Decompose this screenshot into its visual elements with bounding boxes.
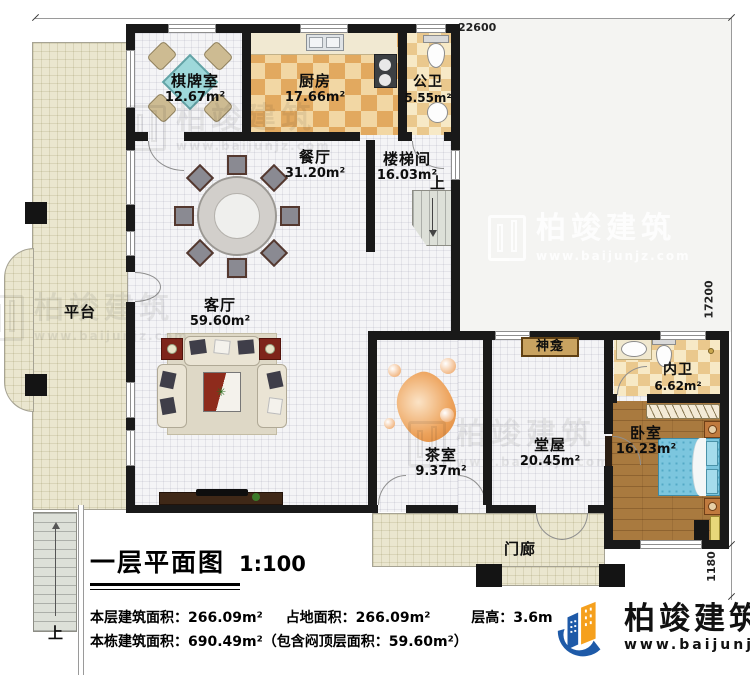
sofa-pillow bbox=[266, 371, 283, 390]
plan-title-row: 一层平面图 1:100 bbox=[90, 543, 553, 579]
wall bbox=[444, 132, 460, 141]
bed-pillow bbox=[706, 469, 718, 494]
room-label-gongwei: 公卫 5.55m² bbox=[399, 74, 457, 105]
wardrobe bbox=[646, 404, 720, 419]
dining-table-inner bbox=[214, 193, 260, 239]
inner-wc-sink bbox=[621, 341, 647, 357]
platform-floor bbox=[32, 42, 128, 510]
window bbox=[168, 24, 216, 33]
wall bbox=[126, 302, 135, 382]
tea-art-dot bbox=[440, 358, 456, 374]
wall bbox=[216, 24, 300, 33]
window bbox=[126, 382, 135, 418]
tea-art-dot bbox=[440, 408, 454, 422]
room-label-keting: 客厅 59.60m² bbox=[175, 296, 265, 330]
dim-porch-value: 1180 bbox=[705, 551, 718, 582]
kitchen-stove-burner bbox=[379, 59, 391, 71]
brand-website: www.baijunjz.com bbox=[624, 637, 750, 653]
public-wc-toilet-tank bbox=[423, 35, 449, 43]
wall bbox=[368, 333, 377, 505]
wall bbox=[368, 331, 495, 340]
sofa-pillow bbox=[237, 339, 254, 354]
wall bbox=[588, 505, 613, 513]
wall bbox=[126, 505, 378, 513]
title-block: 一层平面图 1:100 本层建筑面积：266.09m² 占地面积：266.09m… bbox=[90, 543, 553, 655]
stats-line-2: 本栋建筑面积：690.49m²（包含闷顶层面积：59.60m²） bbox=[90, 631, 553, 655]
kitchen-sink-basin bbox=[309, 37, 323, 48]
room-label-canting: 餐厅 31.20m² bbox=[270, 148, 360, 182]
floor-plan-canvas: 22600 17200 1180 柏竣建筑 www.baijunjz.com 柏… bbox=[0, 0, 750, 677]
kitchen-stove-burner bbox=[379, 74, 391, 86]
exterior-stairs-arrow bbox=[55, 528, 56, 616]
wall bbox=[604, 333, 613, 434]
room-label-woshi: 卧室 16.23m² bbox=[601, 424, 691, 458]
plan-title: 一层平面图 bbox=[90, 543, 225, 579]
stairhall-stairs-arrowhead bbox=[429, 230, 437, 237]
brand-block: 柏竣建筑 www.baijunjz.com bbox=[552, 596, 750, 660]
brand-company: 柏竣建筑 bbox=[624, 603, 750, 636]
wall bbox=[126, 256, 135, 272]
wall bbox=[613, 394, 617, 403]
bedroom-tv-mat bbox=[710, 516, 720, 542]
stairhall-up-label: 上 bbox=[430, 172, 445, 193]
plan-scale: 1:100 bbox=[239, 552, 306, 576]
exterior-stairs-rail bbox=[78, 505, 84, 675]
inner-wc-drain bbox=[708, 348, 714, 354]
room-label-chashi: 茶室 9.37m² bbox=[396, 446, 486, 480]
bedroom-tv bbox=[694, 520, 709, 540]
room-label-shenkan: 神龛 bbox=[521, 339, 579, 355]
sofa-pillow bbox=[160, 397, 177, 415]
exterior-ground bbox=[460, 19, 731, 332]
wall bbox=[126, 205, 135, 231]
wall bbox=[126, 418, 135, 430]
pillar bbox=[25, 202, 47, 224]
tv bbox=[196, 489, 248, 496]
side-table-lamp bbox=[167, 344, 177, 354]
room-label-qipaishi: 棋牌室 12.67m² bbox=[150, 72, 240, 106]
bed-blanket bbox=[692, 438, 706, 496]
pillar bbox=[25, 374, 47, 396]
stat-storey-height: 层高：3.6m bbox=[471, 610, 552, 626]
wall bbox=[647, 394, 729, 403]
exterior-stairs-up-label: 上 bbox=[48, 622, 63, 643]
exterior-stairs-arrowhead bbox=[52, 522, 60, 529]
sofa-pillow bbox=[189, 339, 207, 355]
wall bbox=[184, 132, 251, 141]
stairhall-stairs-arrow bbox=[432, 198, 433, 232]
window bbox=[126, 50, 135, 108]
sofa-pillow bbox=[213, 339, 230, 355]
stats-line-1: 本层建筑面积：266.09m² 占地面积：266.09m² 层高：3.6m bbox=[90, 607, 553, 631]
cabinet-plant bbox=[252, 493, 260, 501]
nightstand-knob bbox=[708, 502, 717, 511]
dim-top-value: 22600 bbox=[458, 21, 496, 34]
window bbox=[416, 24, 446, 33]
wall bbox=[451, 180, 460, 333]
dim-line-top bbox=[35, 18, 732, 19]
stat-floor-area: 本层建筑面积：266.09m² bbox=[90, 610, 263, 626]
wall bbox=[720, 331, 729, 549]
window bbox=[660, 331, 706, 340]
baijun-logo-icon bbox=[552, 596, 614, 660]
window bbox=[126, 430, 135, 466]
room-label-neiwei: 内卫 6.62m² bbox=[647, 362, 709, 393]
dining-chair bbox=[227, 155, 247, 175]
brand-text: 柏竣建筑 www.baijunjz.com bbox=[624, 603, 750, 654]
window bbox=[640, 540, 702, 549]
wall bbox=[486, 505, 536, 513]
dim-right-value: 17200 bbox=[703, 280, 716, 318]
nightstand-knob bbox=[708, 425, 717, 434]
side-table-lamp bbox=[265, 344, 275, 354]
room-label-chufang: 厨房 17.66m² bbox=[270, 72, 360, 106]
pillar bbox=[599, 564, 625, 587]
wall bbox=[242, 132, 360, 141]
window bbox=[126, 231, 135, 256]
bed-pillow bbox=[706, 441, 718, 466]
window bbox=[126, 150, 135, 205]
sofa-pillow bbox=[267, 397, 283, 415]
tea-art-dot bbox=[388, 364, 401, 377]
dining-chair bbox=[280, 206, 300, 226]
dining-chair bbox=[227, 258, 247, 278]
room-label-tangwu: 堂屋 20.45m² bbox=[505, 436, 595, 470]
dining-chair bbox=[174, 206, 194, 226]
window bbox=[300, 24, 348, 33]
wall bbox=[604, 540, 640, 549]
plan-stats: 本层建筑面积：266.09m² 占地面积：266.09m² 层高：3.6m 本栋… bbox=[90, 607, 553, 655]
wall bbox=[126, 24, 135, 50]
rug-plant: ✳ bbox=[216, 386, 228, 398]
kitchen-sink-basin bbox=[326, 37, 340, 48]
stat-total-area: 本栋建筑面积：690.49m²（包含闷顶层面积：59.60m²） bbox=[90, 634, 468, 650]
title-underline-thin bbox=[90, 589, 240, 590]
room-label-pingtai: 平台 bbox=[48, 303, 112, 321]
tea-art-dot bbox=[384, 418, 395, 429]
window bbox=[451, 150, 460, 180]
wall bbox=[398, 132, 412, 141]
wall bbox=[126, 108, 135, 150]
stat-footprint-area: 占地面积：266.09m² bbox=[286, 610, 431, 626]
title-underline-thick bbox=[90, 583, 240, 586]
wall bbox=[242, 24, 251, 141]
wall bbox=[702, 540, 729, 549]
dim-line-right bbox=[731, 18, 732, 600]
wall bbox=[126, 132, 148, 141]
wall bbox=[406, 505, 458, 513]
